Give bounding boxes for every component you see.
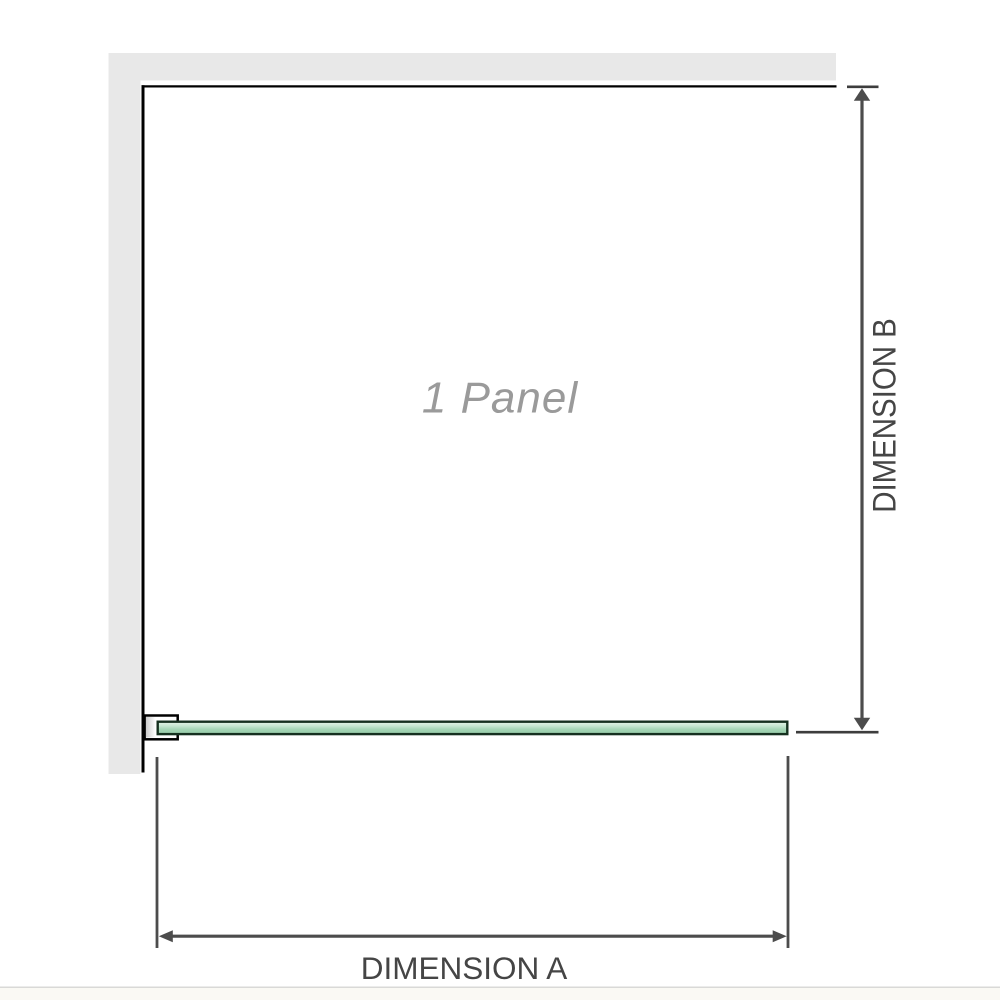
svg-text:1 Panel: 1 Panel: [422, 374, 578, 423]
svg-text:DIMENSION A: DIMENSION A: [361, 950, 568, 986]
svg-text:DIMENSION B: DIMENSION B: [866, 318, 902, 513]
